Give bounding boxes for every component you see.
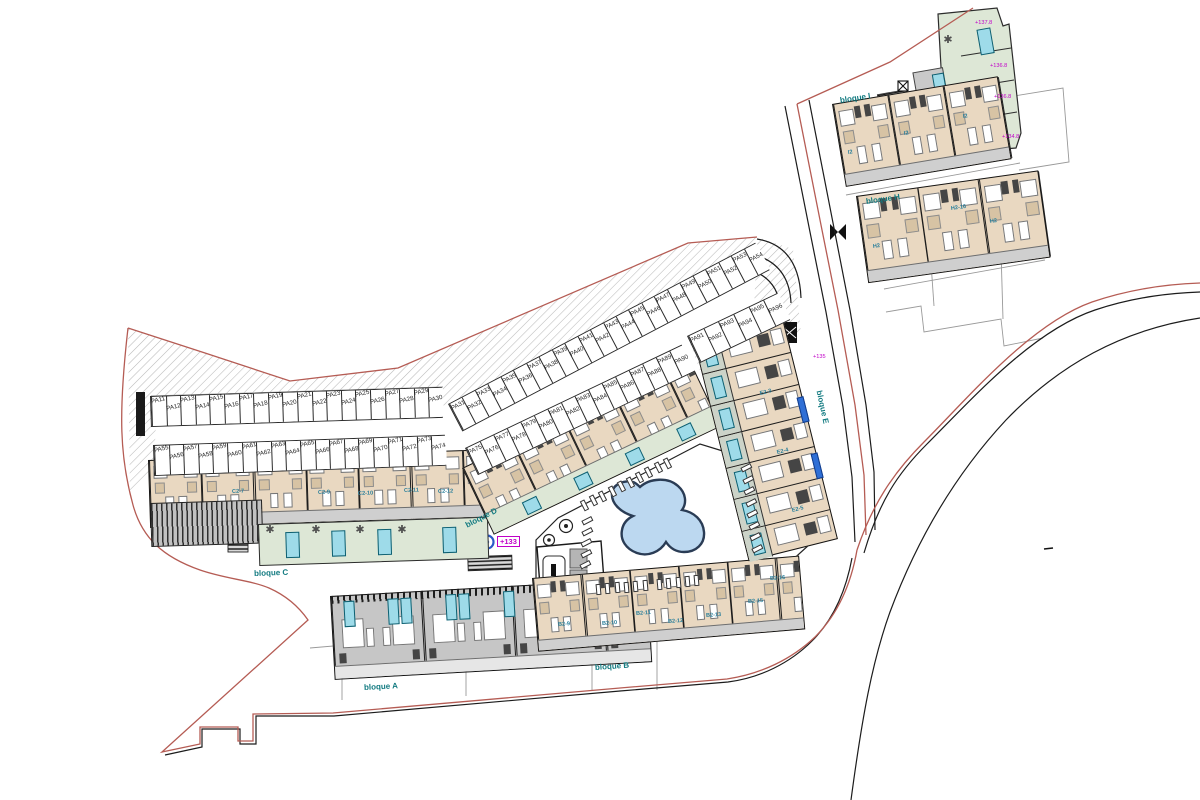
parking-stall-label: PA71	[387, 436, 403, 446]
parking-stall-pa11: PA11	[151, 397, 166, 426]
parking-stall-pa16: PA16	[224, 394, 239, 423]
parking-stall-pa57: PA57	[183, 444, 199, 473]
parking-stall-label: PA29	[413, 387, 429, 397]
parking-stall-pa13: PA13	[180, 396, 195, 425]
parking-stall-pa30: PA30	[428, 388, 443, 417]
parking-stall-label: PA24	[340, 397, 356, 407]
parking-stall-label: PA25	[355, 389, 371, 399]
parking-stall-label: PA58	[197, 450, 213, 460]
parking-stall-label: PA68	[343, 445, 359, 455]
parking-stall-label: PA27	[384, 388, 400, 398]
parking-row-pa11-pa30: PA11PA12PA13PA14PA15PA16PA17PA18PA19PA20…	[150, 387, 443, 427]
parking-stall-label: PA30	[428, 394, 444, 404]
parking-stall-pa22: PA22	[312, 391, 327, 420]
parking-stall-pa66: PA66	[315, 440, 331, 469]
parking-stall-label: PA22	[311, 398, 327, 408]
parking-stall-label: PA59	[212, 442, 228, 452]
parking-stall-pa63: PA63	[271, 441, 287, 470]
parking-stall-pa15: PA15	[209, 395, 224, 424]
parking-stall-label: PA20	[282, 398, 298, 408]
parking-stall-label: PA93	[719, 317, 735, 330]
parking-stall-label: PA90	[673, 353, 689, 366]
parking-stall-pa24: PA24	[341, 391, 356, 420]
parking-stall-label: PA66	[314, 446, 330, 456]
site-plan-canvas: ✱✱✱✱✱ PA11PA12PA13PA14PA15PA16PA17PA18PA…	[0, 0, 1200, 800]
parking-stall-pa72: PA72	[402, 437, 418, 466]
parking-stall-label: PA54	[748, 251, 764, 264]
parking-stall-label: PA64	[285, 447, 301, 457]
parking-stall-label: PA15	[209, 393, 225, 403]
parking-stall-pa62: PA62	[256, 442, 272, 471]
parking-stall-label: PA61	[241, 441, 257, 451]
parking-stall-pa61: PA61	[242, 442, 258, 471]
parking-stall-label: PA91	[689, 332, 705, 345]
parking-stall-pa29: PA29	[414, 388, 429, 417]
parking-stall-pa19: PA19	[268, 393, 283, 422]
parking-stall-label: PA67	[328, 438, 344, 448]
parking-stall-label: PA56	[168, 451, 184, 461]
parking-stall-label: PA57	[183, 443, 199, 453]
parking-stall-pa17: PA17	[239, 394, 254, 423]
parking-stall-pa74: PA74	[431, 436, 447, 465]
parking-stall-label: PA23	[325, 390, 341, 400]
parking-stall-label: PA16	[224, 400, 240, 410]
parking-stall-label: PA60	[227, 449, 243, 459]
parking-stall-pa25: PA25	[355, 390, 370, 419]
parking-stall-label: PA73	[416, 435, 432, 445]
parking-stall-label: PA18	[253, 399, 269, 409]
parking-stall-label: PA28	[399, 395, 415, 405]
parking-stall-pa67: PA67	[329, 439, 345, 468]
parking-stall-label: PA17	[238, 392, 254, 402]
parking-stall-pa20: PA20	[282, 392, 297, 421]
parking-stall-pa18: PA18	[253, 393, 268, 422]
parking-stall-pa21: PA21	[297, 392, 312, 421]
parking-stall-label: PA69	[358, 437, 374, 447]
parking-layer: PA11PA12PA13PA14PA15PA16PA17PA18PA19PA20…	[0, 0, 1200, 800]
parking-stall-label: PA12	[165, 402, 181, 412]
parking-stall-pa73: PA73	[417, 436, 433, 465]
parking-stall-label: PA21	[296, 390, 312, 400]
parking-stall-pa28: PA28	[399, 389, 414, 418]
parking-stall-pa65: PA65	[300, 440, 316, 469]
parking-stall-pa56: PA56	[169, 445, 185, 474]
parking-stall-pa26: PA26	[370, 390, 385, 419]
parking-stall-label: PA11	[150, 395, 165, 405]
parking-stall-label: PA55	[153, 444, 169, 454]
parking-stall-label: PA95	[749, 303, 765, 316]
parking-stall-pa70: PA70	[373, 438, 389, 467]
parking-stall-label: PA70	[372, 444, 388, 454]
parking-stall-pa55: PA55	[154, 445, 170, 474]
parking-stall-label: PA96	[767, 302, 783, 315]
parking-stall-pa27: PA27	[385, 389, 400, 418]
parking-stall-pa71: PA71	[387, 437, 403, 466]
parking-stall-label: PA94	[737, 317, 753, 330]
parking-stall-label: PA72	[402, 443, 418, 453]
parking-row-pa55-pa74: PA55PA56PA57PA58PA59PA60PA61PA62PA63PA64…	[153, 435, 446, 476]
parking-stall-pa23: PA23	[326, 391, 341, 420]
parking-stall-pa60: PA60	[227, 443, 243, 472]
parking-stall-label: PA74	[431, 442, 447, 452]
parking-stall-pa59: PA59	[212, 443, 228, 472]
parking-stall-pa64: PA64	[285, 441, 301, 470]
parking-stall-pa14: PA14	[195, 395, 210, 424]
parking-stall-label: PA13	[180, 394, 196, 404]
parking-stall-pa69: PA69	[358, 438, 374, 467]
parking-stall-label: PA19	[267, 391, 283, 401]
parking-stall-pa12: PA12	[166, 396, 181, 425]
parking-stall-label: PA65	[299, 439, 315, 449]
parking-stall-label: PA62	[256, 448, 272, 458]
parking-stall-label: PA63	[270, 440, 286, 450]
parking-stall-label: PA14	[194, 401, 210, 411]
parking-stall-label: PA92	[707, 331, 723, 344]
parking-stall-label: PA26	[369, 396, 385, 406]
